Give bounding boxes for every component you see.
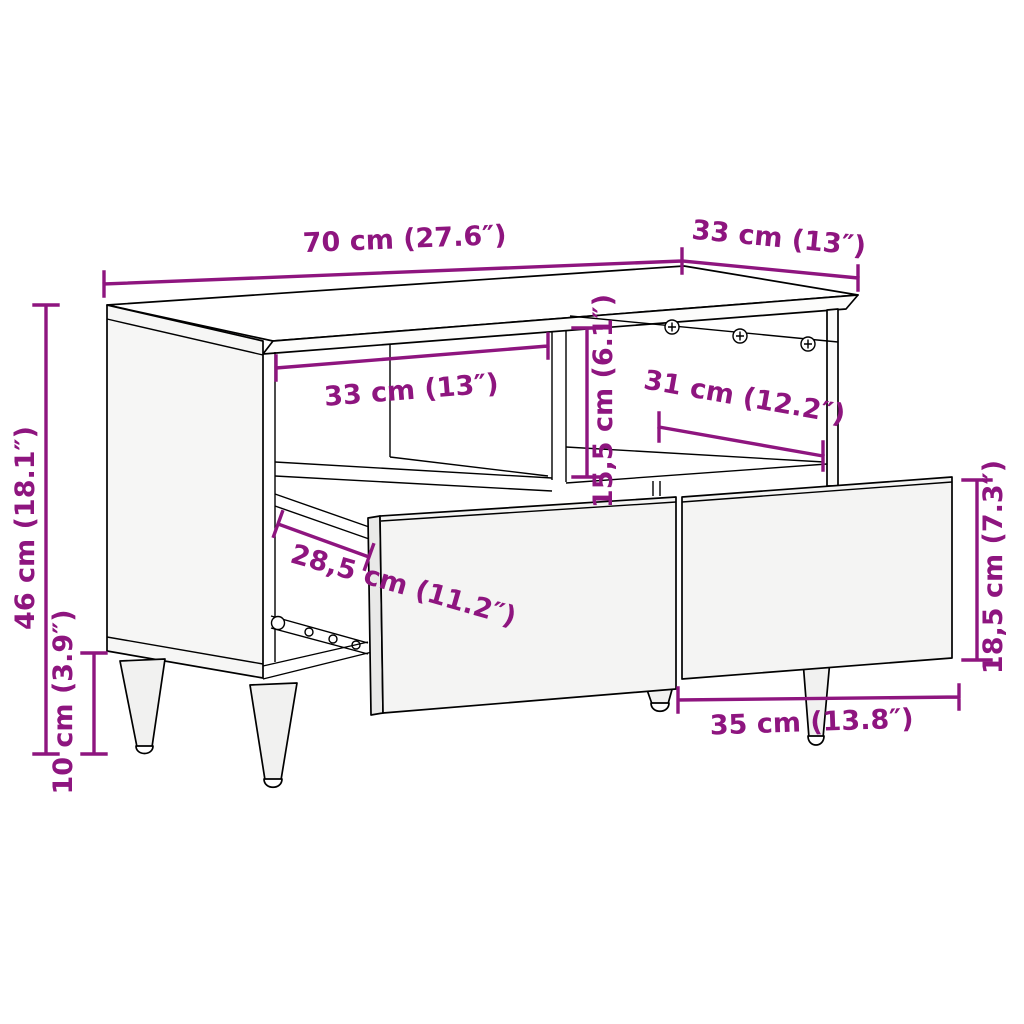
dimension-total-height-label: 46 cm (18.1″): [10, 426, 41, 630]
left-drawer-front: [368, 497, 676, 715]
front-left-leg: [120, 659, 165, 747]
drawer-slide-bottom: [271, 628, 368, 654]
left-compartment-shelf-band: [275, 476, 552, 491]
dimension-leg-height: 10 cm (3.9″): [48, 609, 106, 794]
dimension-top-width-label: 70 cm (27.6″): [302, 220, 507, 259]
left-compartment-shelf-front-edge: [275, 462, 552, 478]
dimension-compartment-width-label: 33 cm (13″): [323, 368, 500, 413]
screw-icon: [329, 635, 337, 643]
screw-icon: [801, 337, 815, 351]
carcass-bottom-edge: [263, 642, 368, 666]
screw-icon: [665, 320, 679, 334]
dimension-compartment-depth-label: 31 cm (12.2″): [641, 365, 847, 431]
right-drawer-front: [682, 477, 952, 679]
back-center-leg-foot: [651, 703, 669, 711]
dimension-top-depth-label: 33 cm (13″): [690, 215, 867, 263]
front-left-leg-foot: [136, 746, 153, 754]
dimension-drawer-front-width-label: 35 cm (13.8″): [709, 703, 914, 741]
drawer-slide-top: [271, 616, 368, 643]
product-dimension-diagram: 70 cm (27.6″) 33 cm (13″) 46 cm (18.1″) …: [0, 0, 1024, 1024]
right-drawer-front-face: [682, 477, 952, 679]
cabinet-left-panel: [107, 305, 263, 678]
screw-icon: [733, 329, 747, 343]
dimension-drawer-front-height: 18,5 cm (7.3″): [963, 460, 1009, 674]
dimension-drawer-front-height-label: 18,5 cm (7.3″): [978, 460, 1009, 674]
screw-icon: [305, 628, 313, 636]
dimension-compartment-depth: 31 cm (12.2″): [641, 365, 847, 470]
dimension-leg-height-label: 10 cm (3.9″): [48, 609, 79, 794]
carcass-bottom-band: [263, 652, 372, 679]
back-left-leg-foot: [264, 779, 282, 787]
drawer-slide-roller-icon: [272, 617, 285, 630]
back-left-leg: [250, 683, 297, 780]
dimension-compartment-height-label: 15,5 cm (6.1″): [588, 294, 619, 508]
